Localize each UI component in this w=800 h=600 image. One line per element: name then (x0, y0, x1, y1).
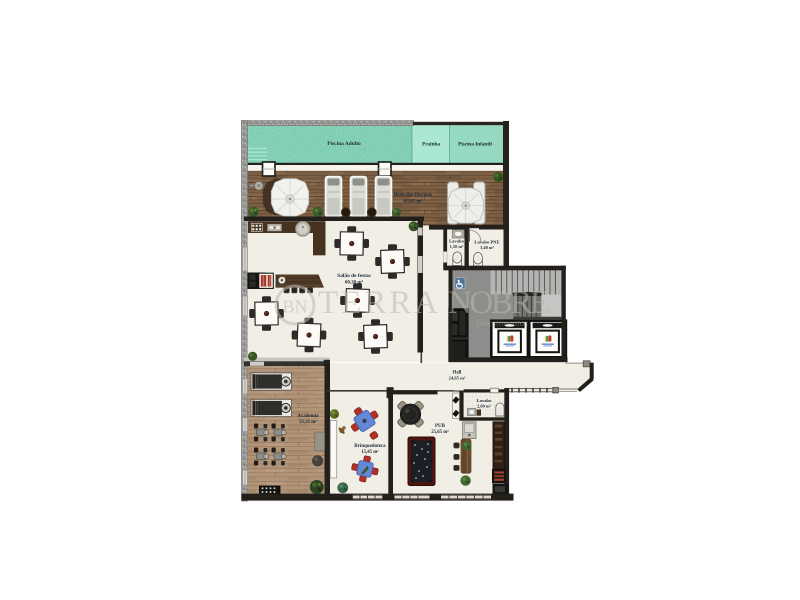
svg-text:25,65 m²: 25,65 m² (431, 429, 449, 435)
svg-text:NOBRE: NOBRE (448, 285, 550, 321)
svg-text:25,35 m²: 25,35 m² (299, 419, 317, 425)
svg-text:PUB: PUB (435, 424, 446, 429)
svg-text:Piscina Adulto: Piscina Adulto (327, 141, 361, 147)
svg-text:Academia: Academia (297, 414, 319, 419)
svg-text:Piscina Infantil: Piscina Infantil (458, 142, 492, 148)
svg-text:BN: BN (282, 297, 307, 317)
svg-text:3,40 m²: 3,40 m² (480, 245, 494, 250)
svg-text:Lavabo: Lavabo (477, 398, 493, 403)
svg-text:TERRA: TERRA (318, 285, 438, 321)
svg-text:Brinquedoteca: Brinquedoteca (354, 444, 386, 449)
svg-text:Deck das Piscinas: Deck das Piscinas (394, 192, 433, 198)
svg-text:Investimentos: Investimentos (475, 319, 529, 329)
svg-text:Salão de festas: Salão de festas (337, 273, 371, 279)
svg-text:Prainha: Prainha (422, 142, 440, 148)
svg-text:24,65 m²: 24,65 m² (449, 376, 466, 381)
svg-text:Lavabo PNE: Lavabo PNE (474, 240, 499, 245)
svg-text:1,50 m²: 1,50 m² (450, 244, 464, 249)
svg-text:2,60 m²: 2,60 m² (477, 404, 491, 409)
svg-text:Lavabo: Lavabo (449, 239, 465, 244)
svg-text:63,85 m²: 63,85 m² (404, 198, 423, 204)
svg-text:15,45 m²: 15,45 m² (361, 449, 379, 455)
